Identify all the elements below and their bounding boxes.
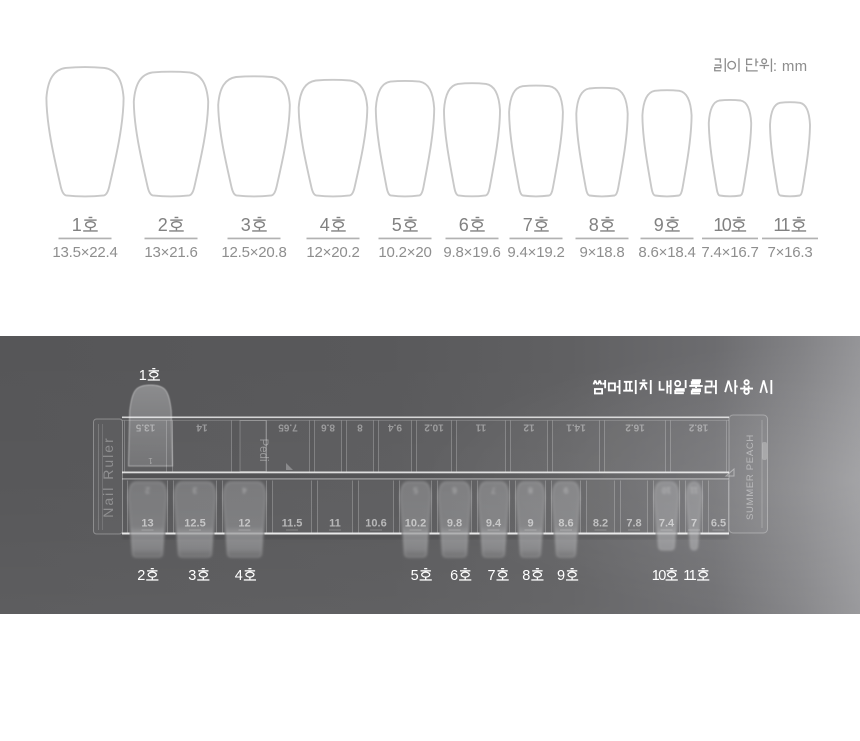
svg-text:11: 11 xyxy=(475,422,486,433)
svg-text:11.5: 11.5 xyxy=(282,518,303,530)
svg-text:2: 2 xyxy=(145,486,150,495)
svg-text:9×18.8: 9×18.8 xyxy=(579,244,624,261)
svg-text:9: 9 xyxy=(563,486,568,495)
svg-text:14: 14 xyxy=(196,422,208,433)
svg-text:9: 9 xyxy=(527,518,533,530)
svg-text:6: 6 xyxy=(459,215,469,235)
svg-text:3: 3 xyxy=(192,486,197,495)
svg-text:7.4×16.7: 7.4×16.7 xyxy=(701,244,758,261)
svg-text:9: 9 xyxy=(654,215,664,235)
svg-text:1: 1 xyxy=(72,215,82,235)
svg-text:3: 3 xyxy=(241,215,251,235)
svg-text:11: 11 xyxy=(689,486,698,495)
svg-text:12×20.2: 12×20.2 xyxy=(306,244,359,261)
svg-text:14.1: 14.1 xyxy=(566,422,586,433)
svg-text:9.4: 9.4 xyxy=(388,422,402,433)
svg-text:13.5×22.4: 13.5×22.4 xyxy=(52,244,117,261)
svg-text:8: 8 xyxy=(528,486,533,495)
svg-text:6.5: 6.5 xyxy=(711,518,726,530)
svg-text:10.6: 10.6 xyxy=(365,518,386,530)
svg-text:Pedi: Pedi xyxy=(257,438,269,461)
svg-text:10.2: 10.2 xyxy=(405,518,426,530)
svg-text:3: 3 xyxy=(188,568,196,584)
svg-text:10: 10 xyxy=(713,215,731,235)
svg-text:2: 2 xyxy=(137,568,145,584)
svg-text:8.6: 8.6 xyxy=(321,422,335,433)
svg-text:10: 10 xyxy=(652,568,666,584)
svg-text:SUMMER PEACH: SUMMER PEACH xyxy=(745,434,756,520)
svg-text:9.8: 9.8 xyxy=(447,518,462,530)
svg-text:9.4: 9.4 xyxy=(486,518,502,530)
svg-text:4: 4 xyxy=(320,215,330,235)
svg-text:11: 11 xyxy=(329,518,341,530)
svg-text:8: 8 xyxy=(589,215,599,235)
svg-text:13: 13 xyxy=(141,518,153,530)
svg-text:8.2: 8.2 xyxy=(593,518,608,530)
svg-text:2: 2 xyxy=(158,215,168,235)
svg-text:1: 1 xyxy=(139,368,147,384)
svg-text:9.8×19.6: 9.8×19.6 xyxy=(443,244,500,261)
svg-text:12: 12 xyxy=(523,422,535,433)
svg-text:9.4×19.2: 9.4×19.2 xyxy=(507,244,564,261)
svg-text:1: 1 xyxy=(148,456,153,465)
svg-text:13×21.6: 13×21.6 xyxy=(144,244,197,261)
svg-text:10: 10 xyxy=(662,486,671,495)
svg-text:6: 6 xyxy=(452,486,457,495)
svg-text:13.5: 13.5 xyxy=(135,422,155,433)
svg-text:8.6×18.4: 8.6×18.4 xyxy=(638,244,695,261)
svg-text:12.5: 12.5 xyxy=(184,518,205,530)
svg-text:7: 7 xyxy=(491,486,496,495)
svg-text:7.4: 7.4 xyxy=(659,518,675,530)
svg-text:10.2×20: 10.2×20 xyxy=(378,244,431,261)
svg-text:: mm: : mm xyxy=(773,58,808,75)
svg-text:6: 6 xyxy=(450,568,458,584)
svg-text:16.2: 16.2 xyxy=(625,422,645,433)
svg-text:10.2: 10.2 xyxy=(424,422,444,433)
svg-text:7: 7 xyxy=(488,568,496,584)
svg-text:5: 5 xyxy=(392,215,402,235)
svg-text:8: 8 xyxy=(357,422,363,433)
svg-text:11: 11 xyxy=(683,568,696,584)
svg-text:7.8: 7.8 xyxy=(626,518,641,530)
svg-text:5: 5 xyxy=(411,568,419,584)
svg-text:7×16.3: 7×16.3 xyxy=(767,244,812,261)
svg-text:18.2: 18.2 xyxy=(688,422,708,433)
svg-text:7: 7 xyxy=(691,518,697,530)
svg-text:5: 5 xyxy=(413,486,418,495)
svg-text:Nail Ruler: Nail Ruler xyxy=(100,436,116,517)
svg-text:7: 7 xyxy=(523,215,533,235)
svg-text:8: 8 xyxy=(522,568,530,584)
svg-text:8.6: 8.6 xyxy=(558,518,573,530)
svg-text:7.65: 7.65 xyxy=(278,422,298,433)
svg-text:12.5×20.8: 12.5×20.8 xyxy=(221,244,286,261)
svg-text:4: 4 xyxy=(242,486,247,495)
svg-text:9: 9 xyxy=(557,568,565,584)
svg-text:12: 12 xyxy=(238,518,250,530)
svg-text:11: 11 xyxy=(773,215,790,235)
svg-text:4: 4 xyxy=(235,568,243,584)
